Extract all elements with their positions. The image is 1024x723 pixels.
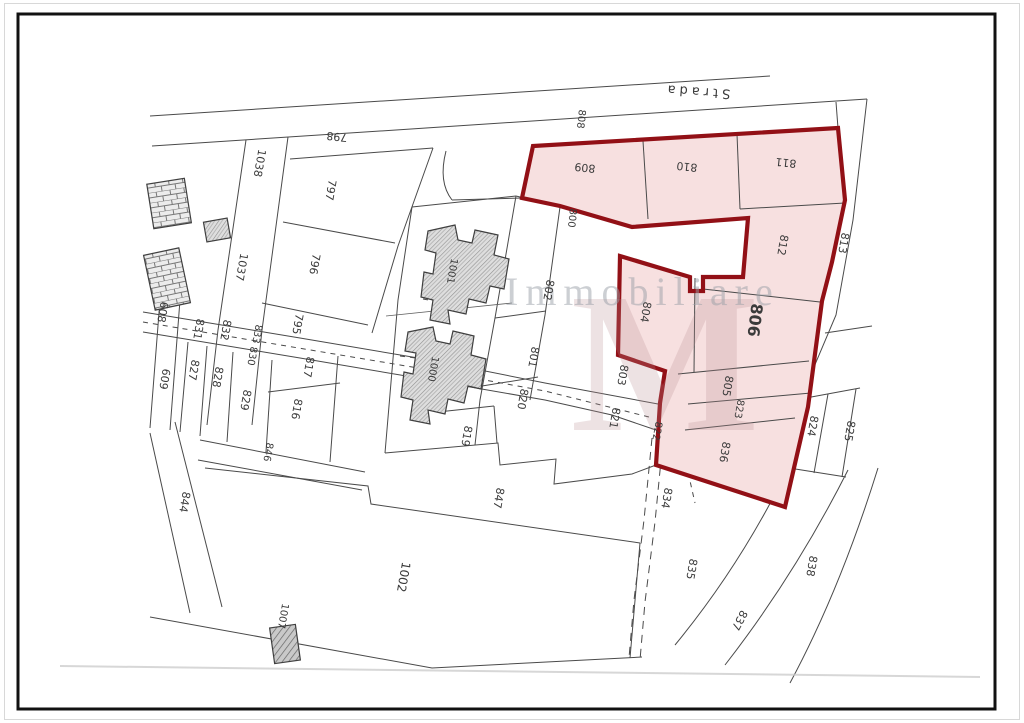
parcel-label-808: 808 — [574, 109, 587, 129]
parcel-label-809: 809 — [574, 160, 596, 175]
brick-building-north — [147, 178, 192, 228]
parcel-label-811: 811 — [775, 155, 797, 170]
parcel-label-798: 798 — [326, 129, 348, 144]
parcel-label-800: 800 — [565, 208, 578, 228]
parcel-label-810: 810 — [676, 159, 698, 174]
page-frame — [5, 4, 1020, 720]
small-outbuilding — [203, 218, 230, 242]
cadastral-map: M Immobiliare Strada80880080981081181281… — [0, 0, 1024, 723]
building-1007 — [270, 624, 301, 663]
cadastral-map-page: M Immobiliare Strada80880080981081181281… — [0, 0, 1024, 723]
parcel-label-806: 806 — [744, 302, 767, 337]
